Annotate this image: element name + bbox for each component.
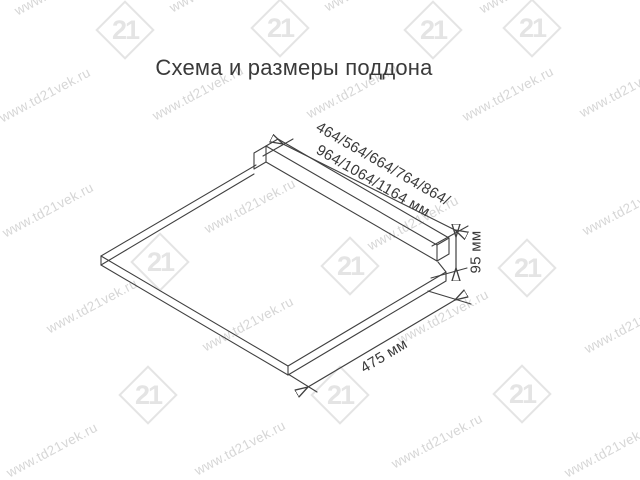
depth-dimension [288,291,471,392]
schematic-image: www.td21vek.ruwww.td21vek.ruwww.td21vek.… [0,0,640,480]
page-title: Схема и размеры поддона [155,55,432,81]
height-dimension-label: 95 мм [468,231,485,274]
